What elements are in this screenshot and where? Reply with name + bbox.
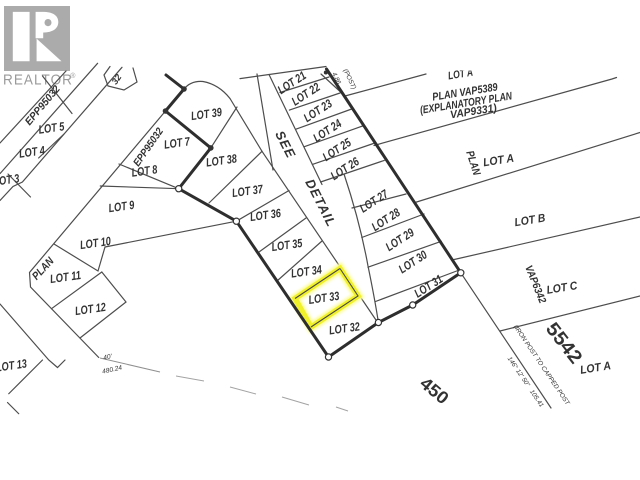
svg-text:®: ® <box>70 72 76 80</box>
